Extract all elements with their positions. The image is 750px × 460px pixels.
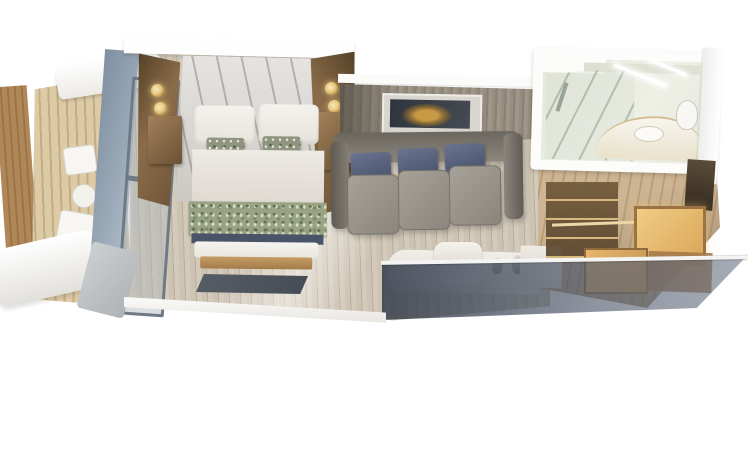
sofa-seat-cushion xyxy=(398,170,451,231)
sofa-seat-cushion xyxy=(347,174,400,235)
sofa-arm-right xyxy=(504,133,524,219)
balcony-chair xyxy=(62,144,98,176)
entrance-door xyxy=(684,159,715,211)
nightstand-left xyxy=(148,116,182,164)
balcony-table xyxy=(72,184,96,208)
foot-bench-base xyxy=(200,256,312,269)
wall-sconce-light xyxy=(154,102,167,115)
wall-sconce-light xyxy=(325,82,338,95)
sofa xyxy=(333,123,520,237)
bathroom-sink xyxy=(634,126,664,142)
wall-sconce-light xyxy=(151,84,164,97)
floral-bed-runner xyxy=(188,201,326,236)
stateroom-render xyxy=(0,0,750,460)
queen-bed xyxy=(191,101,325,270)
closet-open-shelves xyxy=(546,182,618,258)
area-rug xyxy=(196,274,308,294)
sofa-seat-cushion xyxy=(449,165,502,226)
bed-duvet xyxy=(192,149,325,206)
